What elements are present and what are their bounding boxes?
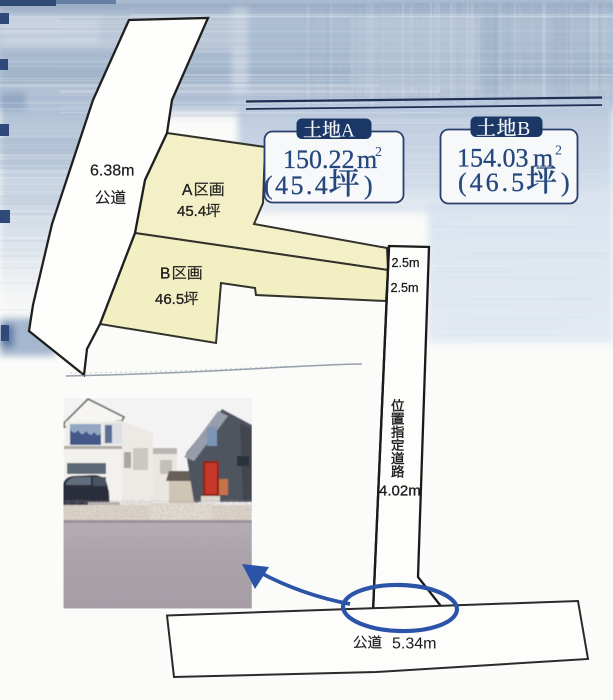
svg-text:150.22: 150.22 — [283, 145, 355, 174]
svg-text:6.38m: 6.38m — [90, 163, 134, 180]
svg-text:2.5m: 2.5m — [391, 281, 419, 295]
svg-text:(45.4: (45.4 — [264, 171, 330, 200]
svg-text:46.5: 46.5 — [155, 291, 184, 308]
svg-text:B: B — [517, 118, 530, 140]
svg-text:): ) — [364, 171, 373, 200]
svg-text:45.4: 45.4 — [177, 203, 206, 220]
svg-text:4.02m: 4.02m — [379, 483, 421, 500]
svg-text:(46.5: (46.5 — [458, 168, 527, 197]
svg-text:A: A — [182, 182, 193, 199]
svg-text:2: 2 — [375, 145, 382, 160]
svg-text:5.34m: 5.34m — [392, 636, 436, 653]
svg-text:A: A — [341, 121, 355, 142]
svg-text:2.5m: 2.5m — [392, 256, 420, 270]
svg-text:): ) — [561, 168, 570, 197]
svg-text:2: 2 — [555, 144, 562, 159]
svg-text:B: B — [160, 266, 170, 283]
